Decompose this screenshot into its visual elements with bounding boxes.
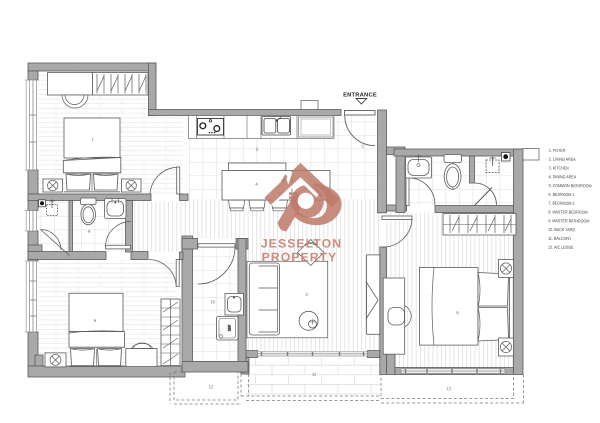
svg-text:6. BEDROOM 1: 6. BEDROOM 1 xyxy=(549,192,576,198)
svg-text:2. LIVING AREA: 2. LIVING AREA xyxy=(549,156,576,162)
svg-text:4. DINING AREA: 4. DINING AREA xyxy=(549,174,577,180)
svg-text:MW: MW xyxy=(227,324,231,331)
svg-text:10: 10 xyxy=(210,299,215,304)
svg-text:10. BACK YARD: 10. BACK YARD xyxy=(548,227,575,233)
svg-text:11: 11 xyxy=(312,372,317,377)
svg-text:11. BALCONY: 11. BALCONY xyxy=(548,236,572,242)
svg-text:JESSELTON: JESSELTON xyxy=(261,236,342,250)
svg-text:12: 12 xyxy=(447,386,452,391)
svg-text:8. MASTER BEDROOM: 8. MASTER BEDROOM xyxy=(548,209,587,215)
svg-text:PROPERTY: PROPERTY xyxy=(262,250,338,264)
svg-text:7. BEDROOM 2: 7. BEDROOM 2 xyxy=(548,200,575,206)
svg-text:ENTRANCE: ENTRANCE xyxy=(343,92,377,98)
svg-text:1. FOYER: 1. FOYER xyxy=(549,148,566,154)
svg-text:12. A/C LEDGE: 12. A/C LEDGE xyxy=(548,244,574,250)
svg-text:12: 12 xyxy=(209,384,214,389)
svg-text:9. MASTER BATHROOM: 9. MASTER BATHROOM xyxy=(548,218,589,224)
svg-text:5. COMMON BATHROOM: 5. COMMON BATHROOM xyxy=(549,183,592,189)
svg-text:3. KITCHEN: 3. KITCHEN xyxy=(549,165,569,171)
